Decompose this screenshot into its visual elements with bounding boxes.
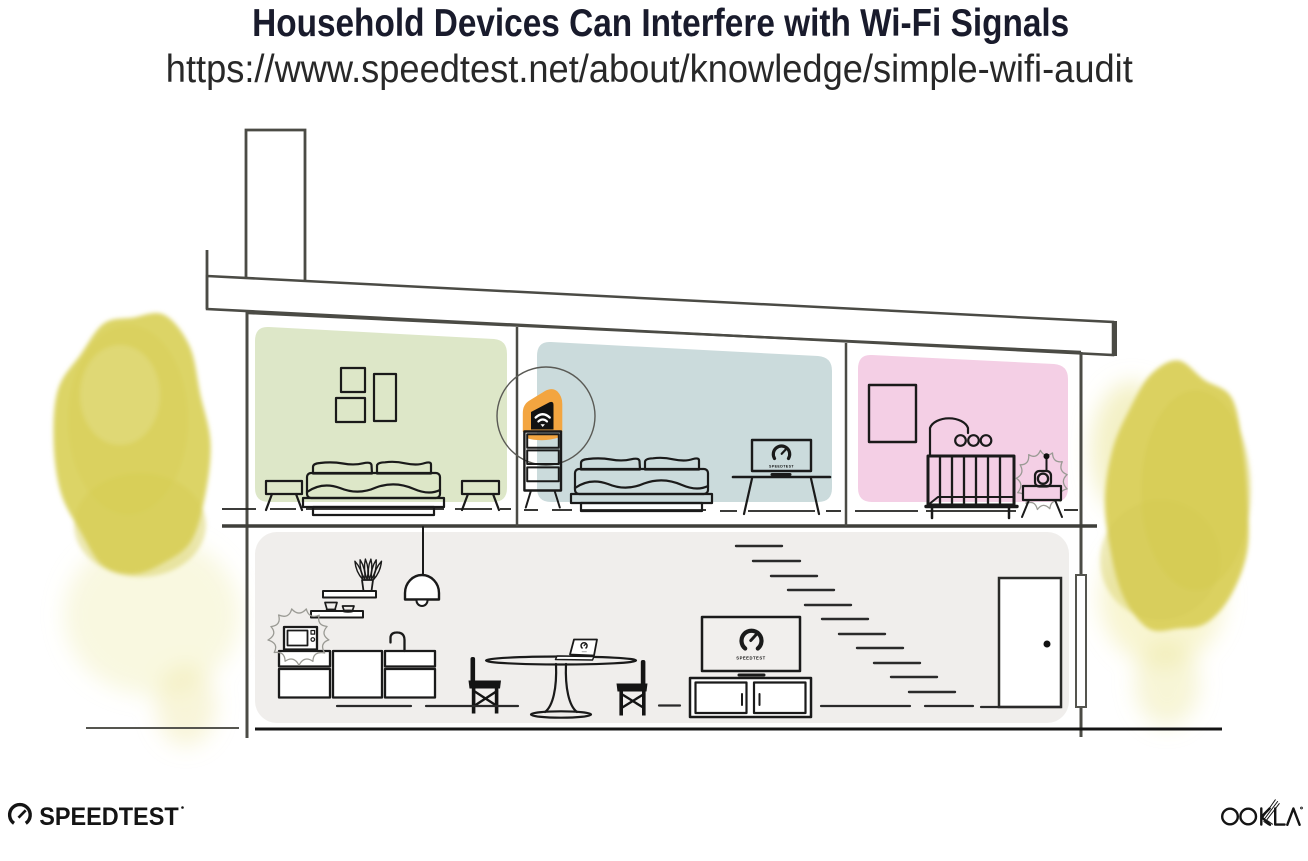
svg-text:SPEEDTEST: SPEEDTEST [736,656,765,661]
svg-text:SPEEDTEST: SPEEDTEST [39,803,179,831]
svg-text:SPEEDTEST: SPEEDTEST [769,465,794,469]
